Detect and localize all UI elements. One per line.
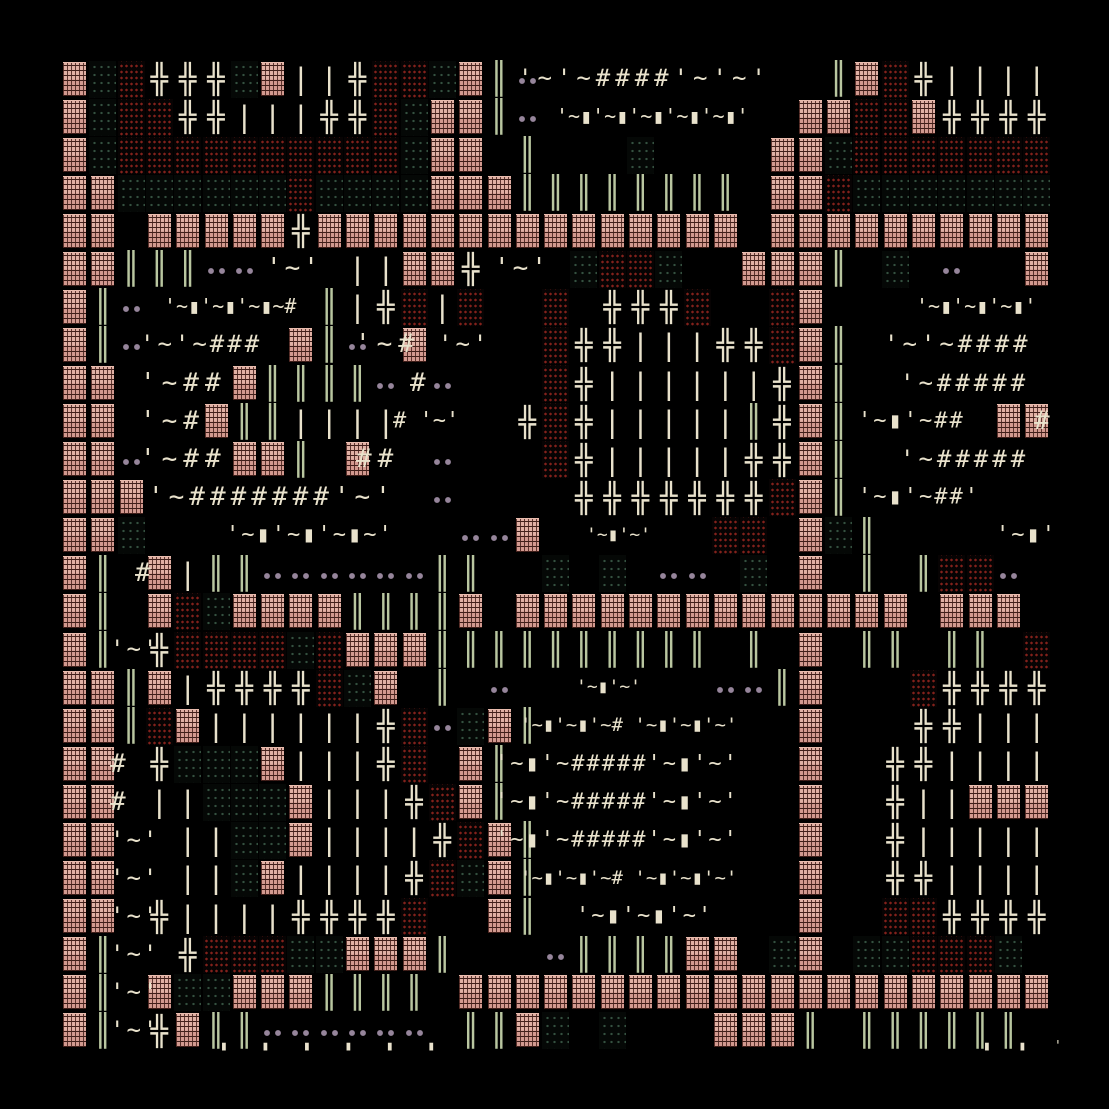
pink-woven-block: [145, 593, 174, 631]
red-dot-block: [372, 99, 399, 136]
bar-glyph: |: [264, 707, 281, 745]
red-dot-block: [344, 137, 371, 174]
red-dot-block: [937, 136, 966, 174]
pink-woven-block: [799, 557, 822, 590]
green-dot-block: [881, 936, 910, 974]
cross-glyph: ╬: [377, 745, 394, 783]
mauve-dot-pair: [739, 669, 768, 707]
red-dot-block: [769, 479, 796, 516]
mauve-dot-pair: [371, 555, 400, 593]
pink-woven-block: [261, 215, 284, 248]
bar-glyph: |: [739, 365, 768, 403]
pink-woven-block: [686, 215, 709, 248]
pink-woven-block: [799, 824, 822, 857]
pink-woven-block: [513, 212, 542, 250]
pink-woven-block: [711, 936, 740, 974]
double-bar-glyph: ║: [654, 174, 683, 212]
mauve-dot-pair: [400, 555, 429, 593]
bar-glyph: |: [1000, 60, 1017, 98]
double-bar-glyph: ║: [433, 593, 452, 631]
bar-glyph: |: [377, 859, 394, 897]
red-dot-block: [118, 137, 145, 174]
red-dot-block: [174, 593, 201, 630]
bar-glyph: |: [971, 821, 988, 859]
mauve-dot-pair: [937, 250, 966, 288]
bar-glyph: |: [315, 60, 344, 98]
cross-glyph: ╬: [971, 98, 988, 136]
cross-glyph: ╬: [286, 898, 315, 936]
green-dot-block: [231, 175, 258, 212]
cross-glyph: ╬: [456, 250, 485, 288]
red-dot-block: [456, 288, 485, 326]
red-dot-block: [853, 99, 880, 136]
double-bar-glyph: ║: [659, 174, 678, 212]
double-bar-glyph: ║: [93, 593, 112, 631]
double-bar-glyph: ║: [824, 250, 853, 288]
pink-woven-block: [796, 517, 825, 555]
pink-woven-block: [63, 824, 86, 857]
double-bar-glyph: ║: [117, 250, 146, 288]
pink-woven-block: [233, 443, 256, 476]
pink-woven-block: [258, 60, 287, 98]
pink-woven-block: [431, 177, 454, 210]
bar-glyph: |: [292, 98, 309, 136]
pink-woven-block: [488, 215, 511, 248]
green-dot-block: [258, 783, 287, 821]
bar-glyph: |: [151, 783, 168, 821]
cross-glyph: ╬: [966, 98, 995, 136]
pink-woven-block: [827, 595, 850, 628]
pink-woven-block: [598, 974, 627, 1012]
bar-glyph: |: [1022, 859, 1051, 897]
pink-woven-block: [824, 974, 853, 1012]
green-dot-block: [203, 593, 230, 630]
pink-woven-block: [60, 783, 89, 821]
pink-woven-block: [799, 405, 822, 438]
pink-woven-block: [258, 974, 287, 1012]
pink-woven-block: [371, 669, 400, 707]
pink-woven-block: [997, 405, 1020, 438]
cross-glyph: ╬: [711, 326, 740, 364]
pink-woven-block: [799, 291, 822, 324]
pink-woven-block: [428, 174, 457, 212]
double-bar-glyph: ║: [178, 250, 197, 288]
pink-woven-block: [176, 710, 199, 743]
pink-woven-block: [601, 976, 624, 1009]
pink-woven-block: [601, 595, 624, 628]
green-dot-block: [145, 174, 174, 212]
cross-glyph: ╬: [915, 707, 932, 745]
glyph-run: '~▮'~▮'~▮~': [226, 523, 394, 548]
cross-glyph: ╬: [632, 288, 649, 326]
double-bar-glyph: ║: [631, 631, 650, 669]
bar-glyph: |: [966, 859, 995, 897]
double-bar-glyph: ║: [88, 593, 117, 631]
mauve-dot-pair: [513, 98, 542, 136]
cross-glyph: ╬: [462, 250, 479, 288]
pink-woven-block: [969, 786, 992, 819]
double-bar-glyph: ║: [626, 174, 655, 212]
pink-woven-block: [796, 212, 825, 250]
pink-woven-block: [91, 672, 114, 705]
red-dot-block: [401, 61, 428, 98]
bar-glyph: |: [400, 821, 429, 859]
double-bar-glyph: ║: [490, 60, 509, 98]
pink-woven-block: [799, 786, 822, 819]
cross-glyph: ╬: [1000, 98, 1017, 136]
red-dot-block: [145, 136, 174, 174]
pink-woven-block: [261, 595, 284, 628]
glyph-run: # '~': [393, 409, 459, 434]
red-dot-block: [456, 821, 485, 859]
pink-woven-block: [318, 595, 341, 628]
bar-glyph: |: [1000, 745, 1017, 783]
pink-woven-block: [909, 974, 938, 1012]
cross-glyph: ╬: [400, 859, 429, 897]
bar-glyph: |: [1000, 859, 1017, 897]
pink-woven-block: [485, 174, 514, 212]
pink-woven-block: [796, 174, 825, 212]
cross-glyph: ╬: [739, 479, 768, 517]
pink-woven-block: [799, 748, 822, 781]
double-bar-glyph: ║: [490, 1012, 509, 1050]
glyph-run: '~##: [140, 368, 227, 398]
pink-woven-block: [796, 707, 825, 745]
double-bar-glyph: ║: [286, 365, 315, 403]
pink-woven-block: [485, 212, 514, 250]
red-dot-block: [429, 860, 456, 897]
bar-glyph: |: [654, 441, 683, 479]
pink-woven-block: [909, 98, 938, 136]
red-dot-block: [400, 60, 429, 98]
green-dot-block: [316, 936, 343, 973]
red-dot-block: [1023, 632, 1050, 669]
double-bar-glyph: ║: [603, 174, 622, 212]
glyph-run: '~': [110, 1016, 159, 1044]
red-dot-block: [542, 289, 569, 326]
pink-woven-block: [1025, 215, 1048, 248]
double-bar-glyph: ║: [824, 403, 853, 441]
double-bar-glyph: ║: [914, 1012, 933, 1050]
red-dot-block: [966, 555, 995, 593]
red-dot-block: [117, 60, 146, 98]
red-dot-block: [316, 632, 343, 669]
double-bar-glyph: ║: [829, 365, 848, 403]
bar-glyph: |: [343, 859, 372, 897]
bar-glyph: |: [286, 859, 315, 897]
green-dot-block: [344, 175, 371, 212]
pink-woven-block: [796, 821, 825, 859]
double-bar-glyph: ║: [343, 593, 372, 631]
green-dot-block: [626, 136, 655, 174]
mauve-dot-pair: [428, 479, 457, 517]
pink-woven-block: [148, 215, 171, 248]
pink-woven-block: [485, 898, 514, 936]
double-bar-glyph: ║: [971, 631, 990, 669]
double-bar-glyph: ║: [598, 631, 627, 669]
red-dot-block: [1022, 631, 1051, 669]
pink-woven-block: [456, 60, 485, 98]
double-bar-glyph: ║: [688, 174, 707, 212]
pink-woven-block: [683, 212, 712, 250]
pink-woven-block: [261, 976, 284, 1009]
double-bar-glyph: ║: [230, 403, 259, 441]
bar-glyph: |: [286, 60, 315, 98]
mauve-dot-pair: [739, 669, 768, 707]
pink-woven-block: [428, 212, 457, 250]
glyph-run: '~': [266, 253, 322, 283]
pink-woven-block: [541, 593, 570, 631]
cross-glyph: ╬: [660, 288, 677, 326]
bar-glyph: |: [179, 783, 196, 821]
bar-glyph: |: [937, 821, 966, 859]
glyph-run: '~#####: [900, 369, 1029, 397]
pink-woven-block: [60, 365, 89, 403]
double-bar-glyph: ║: [881, 1012, 910, 1050]
green-dot-block: [173, 974, 202, 1012]
pink-woven-block: [513, 517, 542, 555]
bar-glyph: |: [320, 821, 337, 859]
bar-glyph: |: [994, 821, 1023, 859]
double-bar-glyph: ║: [824, 479, 853, 517]
double-bar-glyph: ║: [348, 593, 367, 631]
pink-woven-block: [91, 405, 114, 438]
bar-glyph: |: [1022, 707, 1051, 745]
bar-glyph: |: [236, 707, 253, 745]
red-dot-block: [343, 136, 372, 174]
bar-glyph: |: [434, 288, 451, 326]
double-bar-glyph: ║: [569, 936, 598, 974]
pink-woven-block: [233, 367, 256, 400]
double-bar-glyph: ║: [598, 174, 627, 212]
cross-glyph: ╬: [966, 669, 995, 707]
green-dot-block: [541, 555, 570, 593]
glyph-run: ▮ ▮ ▮ ▮ ▮ ▮: [220, 1039, 441, 1054]
pink-woven-block: [176, 215, 199, 248]
bar-glyph: |: [230, 707, 259, 745]
bar-glyph: |: [1028, 707, 1045, 745]
pink-woven-block: [714, 215, 737, 248]
bar-glyph: |: [179, 555, 196, 593]
pink-woven-block: [714, 1014, 737, 1047]
double-bar-glyph: ║: [829, 479, 848, 517]
pink-woven-block: [60, 555, 89, 593]
cross-glyph: ╬: [230, 669, 259, 707]
pink-woven-block: [346, 215, 369, 248]
pink-woven-block: [884, 595, 907, 628]
pink-woven-block: [739, 250, 768, 288]
pink-woven-block: [60, 517, 89, 555]
bar-glyph: |: [971, 707, 988, 745]
pink-woven-block: [148, 557, 171, 590]
pink-woven-block: [994, 783, 1023, 821]
red-dot-block: [230, 631, 259, 669]
pink-woven-block: [742, 253, 765, 286]
bar-glyph: |: [1028, 821, 1045, 859]
bar-glyph: |: [654, 326, 683, 364]
green-dot-block: [598, 555, 627, 593]
double-bar-glyph: ║: [320, 974, 339, 1012]
mauve-dot-pair: [371, 365, 400, 403]
pink-woven-block: [91, 710, 114, 743]
cross-glyph: ╬: [377, 898, 394, 936]
pink-woven-block: [966, 593, 995, 631]
cross-glyph: ╬: [1022, 669, 1051, 707]
green-dot-block: [599, 555, 626, 592]
bar-glyph: |: [343, 821, 372, 859]
double-bar-glyph: ║: [292, 441, 311, 479]
green-dot-block: [230, 821, 259, 859]
double-bar-glyph: ║: [315, 974, 344, 1012]
double-bar-glyph: ║: [829, 250, 848, 288]
red-dot-block: [909, 669, 938, 707]
bar-glyph: |: [654, 365, 683, 403]
green-dot-block: [118, 517, 145, 554]
red-dot-block: [202, 631, 231, 669]
green-dot-block: [853, 936, 880, 973]
bar-glyph: |: [966, 707, 995, 745]
pink-woven-block: [768, 1012, 797, 1050]
green-dot-block: [231, 61, 258, 98]
green-dot-block: [258, 174, 287, 212]
bar-glyph: |: [626, 403, 655, 441]
pink-woven-block: [88, 174, 117, 212]
red-dot-block: [174, 632, 201, 669]
pink-woven-block: [852, 60, 881, 98]
pink-woven-block: [343, 212, 372, 250]
double-bar-glyph: ║: [942, 1012, 961, 1050]
pink-woven-block: [1025, 976, 1048, 1009]
double-bar-glyph: ║: [513, 898, 542, 936]
red-dot-block: [768, 326, 797, 364]
pink-woven-block: [202, 212, 231, 250]
red-dot-block: [541, 403, 570, 441]
pink-woven-block: [205, 215, 228, 248]
cross-glyph: ╬: [598, 479, 627, 517]
red-dot-block: [174, 137, 201, 174]
glyph-run: '~▮'~#####'~▮'~': [495, 790, 739, 815]
bar-glyph: |: [145, 783, 174, 821]
pink-woven-block: [488, 976, 511, 1009]
pink-woven-block: [60, 98, 89, 136]
bar-glyph: |: [943, 60, 960, 98]
red-dot-block: [994, 136, 1023, 174]
pink-woven-block: [459, 177, 482, 210]
bar-glyph: |: [343, 707, 372, 745]
bar-glyph: |: [660, 403, 677, 441]
green-dot-block: [202, 783, 231, 821]
red-dot-block: [457, 289, 484, 326]
pink-woven-block: [145, 212, 174, 250]
green-dot-block: [655, 251, 682, 288]
bar-glyph: |: [371, 821, 400, 859]
red-dot-block: [145, 707, 174, 745]
green-dot-block: [173, 174, 202, 212]
red-dot-block: [541, 365, 570, 403]
cross-glyph: ╬: [519, 403, 536, 441]
red-dot-block: [287, 175, 314, 212]
cross-glyph: ╬: [286, 212, 315, 250]
pink-woven-block: [261, 443, 284, 476]
bar-glyph: |: [292, 745, 309, 783]
double-bar-glyph: ║: [93, 555, 112, 593]
red-dot-block: [995, 137, 1022, 174]
pink-woven-block: [855, 595, 878, 628]
red-dot-block: [203, 137, 230, 174]
double-bar-glyph: ║: [852, 1012, 881, 1050]
green-dot-block: [88, 136, 117, 174]
bar-glyph: |: [1022, 60, 1051, 98]
double-bar-glyph: ║: [541, 174, 570, 212]
red-dot-block: [117, 98, 146, 136]
red-dot-block: [910, 898, 937, 935]
green-dot-block: [88, 60, 117, 98]
cross-glyph: ╬: [654, 288, 683, 326]
pink-woven-block: [173, 1012, 202, 1050]
bar-glyph: |: [971, 745, 988, 783]
red-dot-block: [258, 631, 287, 669]
pink-woven-block: [63, 519, 86, 552]
red-dot-block: [882, 898, 909, 935]
red-dot-block: [429, 784, 456, 821]
cross-glyph: ╬: [739, 326, 768, 364]
cross-glyph: ╬: [349, 898, 366, 936]
bar-glyph: |: [943, 783, 960, 821]
green-dot-block: [400, 136, 429, 174]
cross-glyph: ╬: [745, 441, 762, 479]
bar-glyph: |: [315, 745, 344, 783]
glyph-run: '~': [110, 940, 159, 968]
pink-woven-block: [768, 250, 797, 288]
double-bar-glyph: ║: [456, 555, 485, 593]
pink-woven-block: [459, 786, 482, 819]
bar-glyph: |: [292, 707, 309, 745]
pink-woven-block: [799, 215, 822, 248]
pink-woven-block: [488, 177, 511, 210]
mauve-dot-pair: [428, 365, 457, 403]
pink-woven-block: [258, 593, 287, 631]
bar-glyph: |: [688, 441, 705, 479]
cross-glyph: ╬: [994, 98, 1023, 136]
pink-woven-block: [1022, 250, 1051, 288]
double-bar-glyph: ║: [739, 631, 768, 669]
pink-woven-block: [796, 479, 825, 517]
green-dot-block: [202, 174, 231, 212]
cross-glyph: ╬: [343, 98, 372, 136]
glyph-run: ##: [356, 444, 399, 474]
double-bar-glyph: ║: [173, 250, 202, 288]
red-dot-block: [966, 936, 995, 974]
cross-glyph: ╬: [371, 745, 400, 783]
pink-woven-block: [88, 517, 117, 555]
pink-woven-block: [768, 212, 797, 250]
red-dot-block: [372, 61, 399, 98]
double-bar-glyph: ║: [88, 326, 117, 364]
red-dot-block: [259, 137, 286, 174]
pink-woven-block: [711, 974, 740, 1012]
bar-glyph: |: [405, 821, 422, 859]
double-bar-glyph: ║: [400, 974, 429, 1012]
green-dot-block: [401, 175, 428, 212]
pink-woven-block: [63, 557, 86, 590]
double-bar-glyph: ║: [405, 974, 424, 1012]
green-dot-block: [456, 859, 485, 897]
double-bar-glyph: ║: [433, 631, 452, 669]
pink-woven-block: [796, 745, 825, 783]
double-bar-glyph: ║: [937, 631, 966, 669]
red-dot-block: [286, 136, 315, 174]
red-dot-block: [768, 288, 797, 326]
